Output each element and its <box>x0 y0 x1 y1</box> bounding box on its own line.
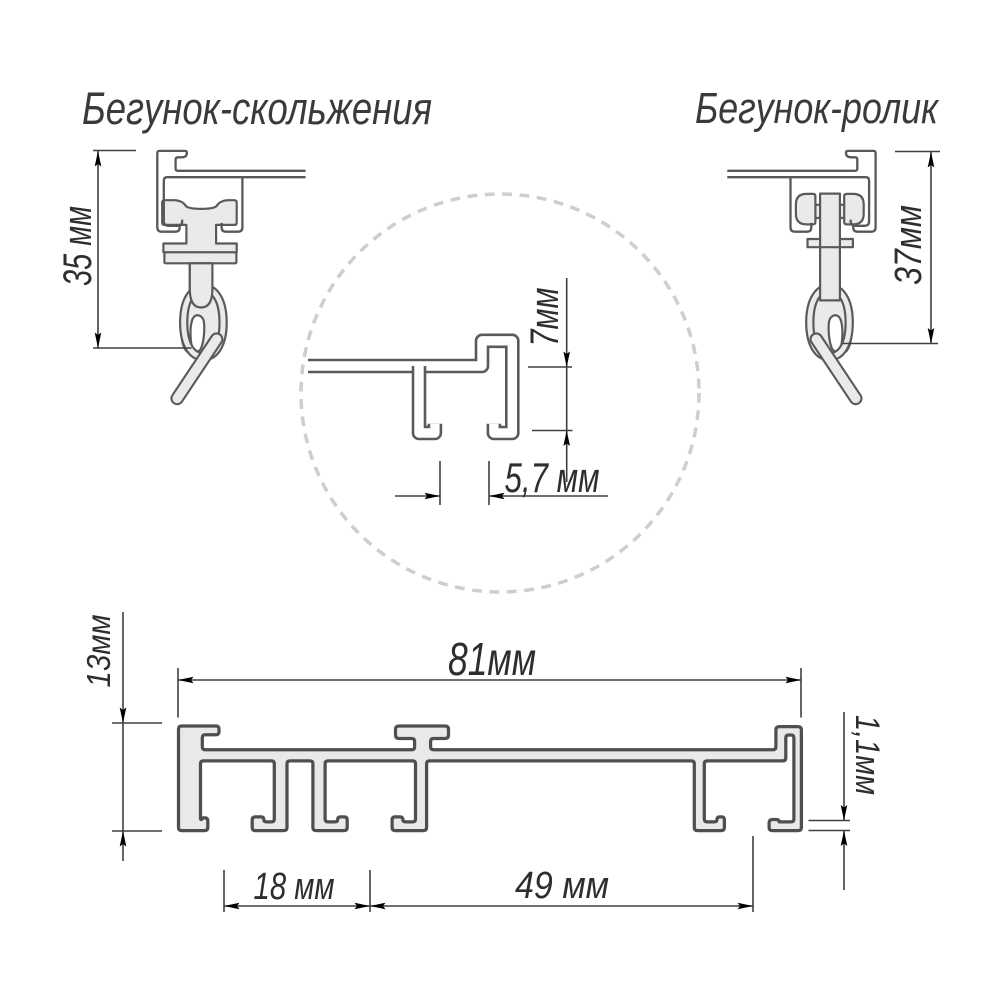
svg-text:18 мм: 18 мм <box>254 866 335 908</box>
svg-text:Бегунок-ролик: Бегунок-ролик <box>695 84 940 133</box>
svg-text:5,7 мм: 5,7 мм <box>505 454 600 501</box>
svg-text:Бегунок-скольжения: Бегунок-скольжения <box>82 83 432 134</box>
svg-text:13мм: 13мм <box>80 615 117 688</box>
svg-text:7мм: 7мм <box>523 288 567 347</box>
svg-text:35 мм: 35 мм <box>56 206 100 286</box>
svg-text:81мм: 81мм <box>448 633 536 685</box>
svg-text:49 мм: 49 мм <box>515 865 609 907</box>
svg-text:37мм: 37мм <box>888 205 930 285</box>
svg-text:1,1мм: 1,1мм <box>848 715 886 795</box>
